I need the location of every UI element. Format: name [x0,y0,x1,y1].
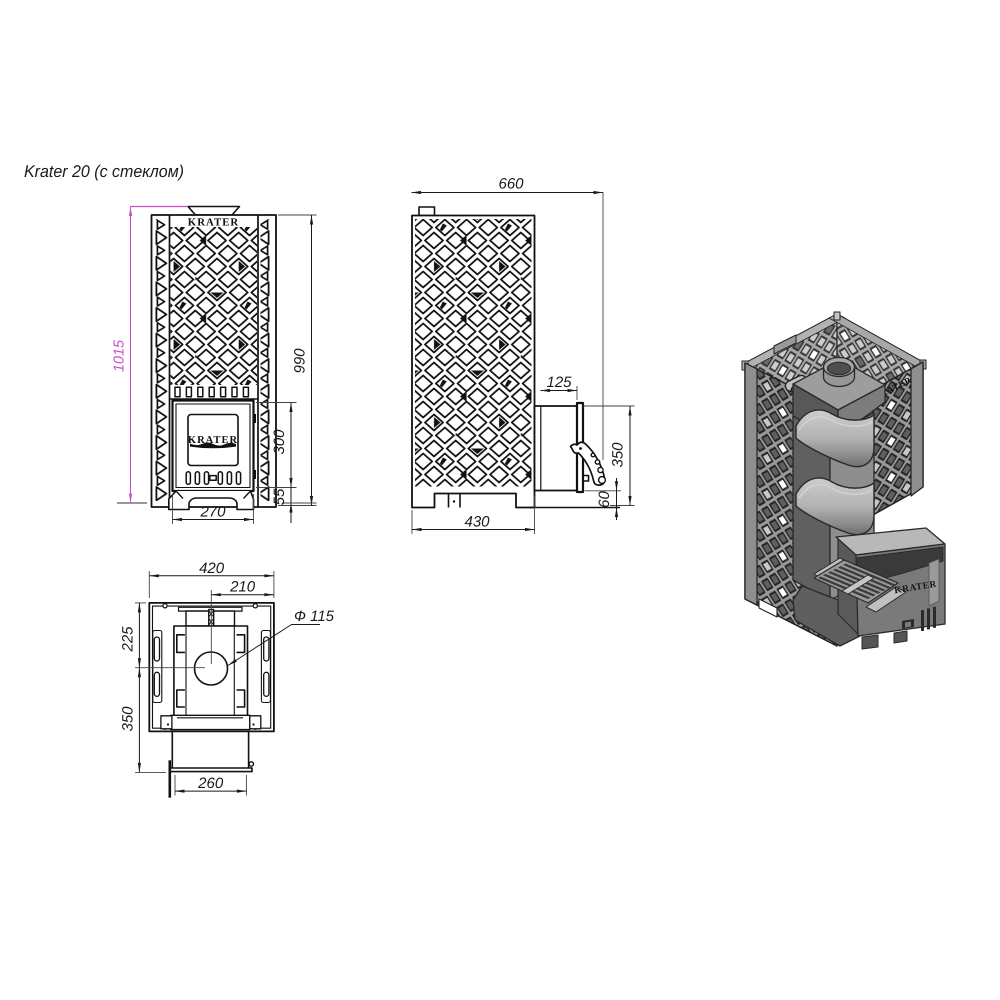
svg-text:210: 210 [229,579,256,596]
svg-text:350: 350 [610,442,627,468]
svg-text:270: 270 [199,504,226,521]
svg-text:125: 125 [546,374,572,391]
svg-text:420: 420 [199,560,225,577]
svg-text:55: 55 [271,488,288,505]
svg-text:KRATER: KRATER [188,217,239,229]
svg-text:Ф 115: Ф 115 [294,608,335,625]
svg-text:990: 990 [292,348,309,374]
svg-text:430: 430 [464,514,490,531]
svg-text:60: 60 [596,491,613,508]
svg-text:Krater 20 (с стеклом): Krater 20 (с стеклом) [24,162,184,181]
svg-text:260: 260 [197,775,224,792]
svg-text:225: 225 [120,626,137,653]
svg-text:660: 660 [498,176,524,193]
svg-text:350: 350 [120,706,137,732]
svg-text:1015: 1015 [112,339,128,372]
svg-text:300: 300 [271,429,288,455]
